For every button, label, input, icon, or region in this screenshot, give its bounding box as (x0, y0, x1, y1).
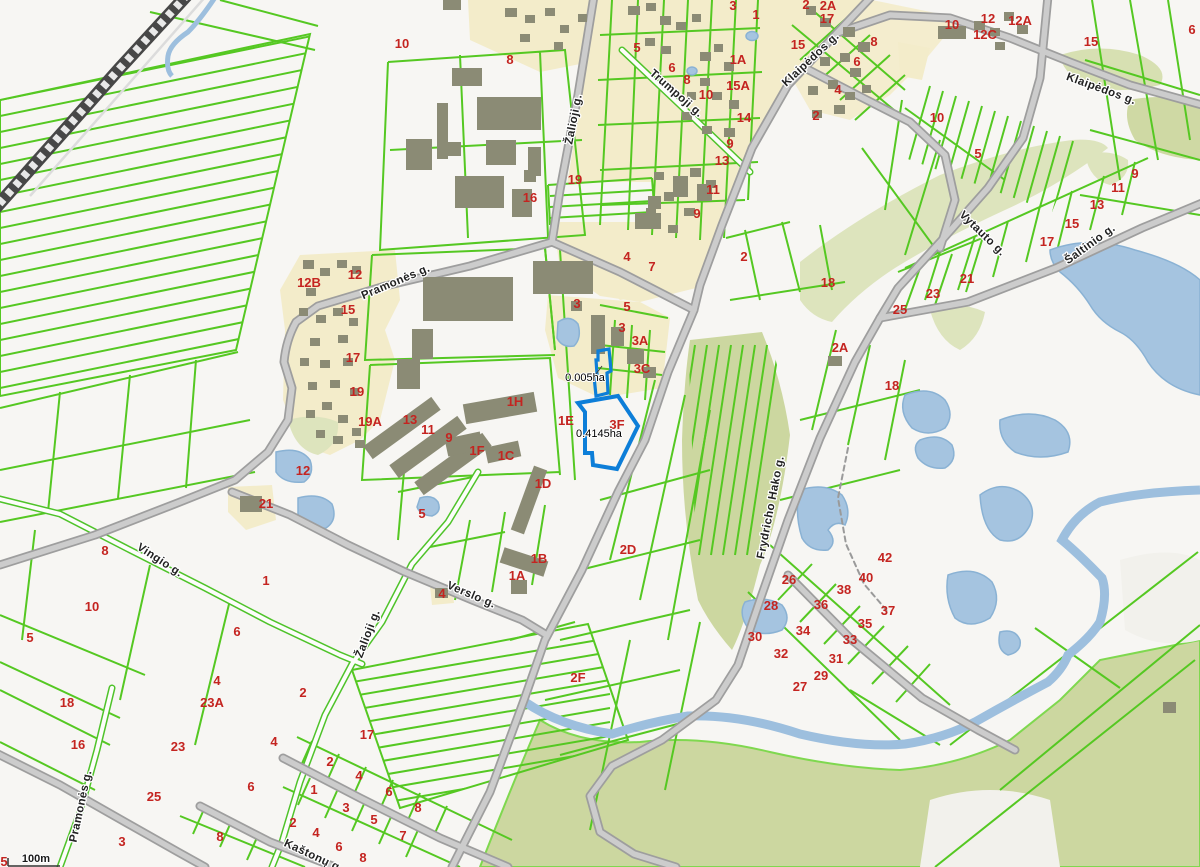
parcel-number-label: 35 (858, 616, 872, 631)
parcel-number-label: 10 (699, 87, 713, 102)
parcel-number-label: 6 (1188, 22, 1195, 37)
parcel-number-label: 8 (359, 850, 366, 865)
parcel-number-label: 1B (531, 551, 548, 566)
parcel-number-label: 7 (399, 828, 406, 843)
parcel-number-label: 7 (648, 259, 655, 274)
parcel-number-label: 17 (360, 727, 374, 742)
scale-label: 100m (22, 853, 50, 865)
parcel-number-label: 6 (385, 784, 392, 799)
parcel-number-label: 1H (507, 394, 524, 409)
parcel-number-label: 12 (348, 267, 362, 282)
parcel-number-label: 13 (1090, 197, 1104, 212)
parcel-number-label: 19A (358, 414, 382, 429)
street-name-label: Žalioji g. (353, 608, 383, 660)
parcel-number-label: 4 (834, 82, 842, 97)
parcel-number-label: 13 (715, 153, 729, 168)
parcel-number-label: 1F (469, 443, 484, 458)
parcel-number-label: 2 (802, 0, 809, 12)
map-viewport[interactable]: Žalioji g.Trumpoji g.Klaipėdos g.Klaipėd… (0, 0, 1200, 867)
parcel-number-label: 3A (632, 333, 649, 348)
parcel-number-label: 23A (200, 695, 224, 710)
parcel-number-label: 34 (796, 623, 811, 638)
parcel-number-label: 17 (346, 350, 360, 365)
parcel-number-label: 3 (342, 800, 349, 815)
parcel-number-label: 8 (870, 34, 877, 49)
parcel-number-label: 5 (370, 812, 377, 827)
parcel-number-label: 23 (171, 739, 185, 754)
parcel-number-label: 19 (568, 172, 582, 187)
railway (0, 0, 206, 212)
parcel-number-label: 6 (335, 839, 342, 854)
parcel-number-label: 2F (570, 670, 585, 685)
parcel-number-label: 4 (312, 825, 320, 840)
parcel-number-label: 4 (213, 673, 221, 688)
parcel-number-label: 31 (829, 651, 843, 666)
parcel-number-label: 4 (355, 768, 363, 783)
parcel-number-label: 9 (693, 206, 700, 221)
parcel-number-label: 30 (748, 629, 762, 644)
parcel-number-label: 38 (837, 582, 851, 597)
cadastral-map[interactable]: Žalioji g.Trumpoji g.Klaipėdos g.Klaipėd… (0, 0, 1200, 867)
parcel-number-label: 28 (764, 598, 778, 613)
parcel-number-label: 9 (726, 136, 733, 151)
parcel-number-label: 2 (289, 815, 296, 830)
parcel-number-label: 1A (730, 52, 747, 67)
parcel-number-label: 2 (299, 685, 306, 700)
parcel-number-label: 25 (893, 302, 907, 317)
parcel-number-label: 10 (945, 17, 959, 32)
parcel-area-label: 0.4145ha (576, 428, 623, 440)
parcel-number-label: 17 (1040, 234, 1054, 249)
parcel-number-label: 17 (820, 11, 834, 26)
parcel-number-label: 15 (791, 37, 805, 52)
parcel-number-label: 11 (1111, 180, 1125, 195)
parcel-number-label: 15 (1084, 34, 1098, 49)
parcel-number-label: 23 (926, 286, 940, 301)
parcel-number-label: 25 (147, 789, 161, 804)
parcel-number-label: 14 (737, 110, 752, 125)
parcel-number-label: 1C (498, 448, 515, 463)
parcel-number-label: 12C (973, 27, 997, 42)
parcel-number-label: 12 (981, 11, 995, 26)
parcel-number-label: 8 (414, 800, 421, 815)
parcel-number-label: 11 (706, 182, 720, 197)
parcel-number-label: 33 (843, 632, 857, 647)
parcel-number-label: 1 (310, 782, 317, 797)
parcel-number-label: 5 (633, 40, 640, 55)
parcel-number-label: 27 (793, 679, 807, 694)
parcel-number-label: 12 (296, 463, 310, 478)
parcel-number-label: 1D (535, 476, 552, 491)
parcel-number-label: 15A (726, 78, 750, 93)
parcel-number-label: 2 (740, 249, 747, 264)
parcel-number-label: 8 (683, 72, 690, 87)
parcel-number-label: 3 (573, 296, 580, 311)
parcel-number-label: 6 (233, 624, 240, 639)
parcel-number-label: 6 (668, 60, 675, 75)
parcel-number-label: 1E (558, 413, 574, 428)
parcel-number-label: 18 (821, 275, 835, 290)
parcel-number-label: 3C (634, 361, 651, 376)
parcel-number-label: 9 (445, 430, 452, 445)
parcel-number-label: 16 (523, 190, 537, 205)
parcel-number-label: 37 (881, 603, 895, 618)
parcel-number-label: 3 (729, 0, 736, 13)
parcel-number-label: 4 (623, 249, 631, 264)
street-name-label: Vingio g. (135, 541, 185, 579)
parcel-number-label: 6 (853, 54, 860, 69)
parcel-number-label: 5 (623, 299, 630, 314)
parcel-number-label: 19 (350, 384, 364, 399)
parcel-number-label: 2D (620, 542, 637, 557)
parcel-number-label: 6 (247, 779, 254, 794)
parcel-number-label: 8 (506, 52, 513, 67)
parcel-number-label: 10 (930, 110, 944, 125)
parcel-number-label: 1 (262, 573, 269, 588)
parcel-number-label: 12B (297, 275, 321, 290)
parcel-number-label: 10 (395, 36, 409, 51)
parcel-number-label: 36 (814, 597, 828, 612)
parcel-number-label: 5 (418, 506, 425, 521)
parcel-number-label: 21 (960, 271, 974, 286)
parcel-number-label: 29 (814, 668, 828, 683)
parcel-number-label: 9 (1131, 166, 1138, 181)
parcel-number-label: 2A (832, 340, 849, 355)
parcel-number-label: 5 (0, 854, 7, 867)
parcel-number-label: 40 (859, 570, 873, 585)
parcel-number-label: 13 (403, 412, 417, 427)
parcel-number-label: 3 (618, 320, 625, 335)
parcel-number-label: 15 (1065, 216, 1079, 231)
parcel-number-label: 5 (974, 146, 981, 161)
parcel-number-label: 26 (782, 572, 796, 587)
parcel-number-label: 2 (812, 108, 819, 123)
parcel-number-label: 8 (216, 829, 223, 844)
parcel-number-label: 32 (774, 646, 788, 661)
parcel-number-label: 2 (326, 754, 333, 769)
parcel-number-label: 11 (421, 422, 435, 437)
parcel-number-label: 15 (341, 302, 355, 317)
parcel-number-label: 12A (1008, 13, 1032, 28)
parcel-area-label: 0.005ha (565, 372, 606, 384)
parcel-number-label: 1A (509, 568, 526, 583)
parcel-number-label: 42 (878, 550, 892, 565)
parcel-number-label: 4 (438, 586, 446, 601)
scale-indicator: 100m (8, 853, 60, 866)
parcel-number-label: 3 (118, 834, 125, 849)
parcel-number-label: 18 (60, 695, 74, 710)
parcel-number-label: 5 (26, 630, 33, 645)
parcel-number-label: 4 (270, 734, 278, 749)
parcel-number-label: 10 (85, 599, 99, 614)
parcel-number-label: 1 (752, 7, 759, 22)
parcel-number-label: 18 (885, 378, 899, 393)
parcel-number-label: 21 (259, 496, 273, 511)
parcel-number-label: 8 (101, 543, 108, 558)
parcel-number-label: 16 (71, 737, 85, 752)
